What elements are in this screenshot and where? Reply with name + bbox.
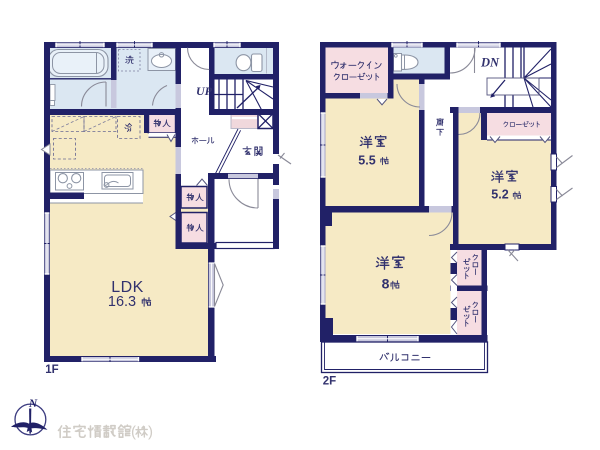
svg-text:): ) <box>148 423 153 440</box>
svg-text:5.2: 5.2 <box>491 188 508 202</box>
svg-text:5.5: 5.5 <box>358 153 375 167</box>
svg-text:16.3: 16.3 <box>108 294 136 310</box>
svg-text:1F: 1F <box>45 364 58 376</box>
svg-text:8: 8 <box>382 276 390 292</box>
svg-text:2F: 2F <box>323 376 336 388</box>
svg-text:(: ( <box>131 423 136 440</box>
svg-text:N: N <box>28 398 38 410</box>
svg-text:DN: DN <box>480 55 500 69</box>
svg-text:UP: UP <box>196 84 213 98</box>
